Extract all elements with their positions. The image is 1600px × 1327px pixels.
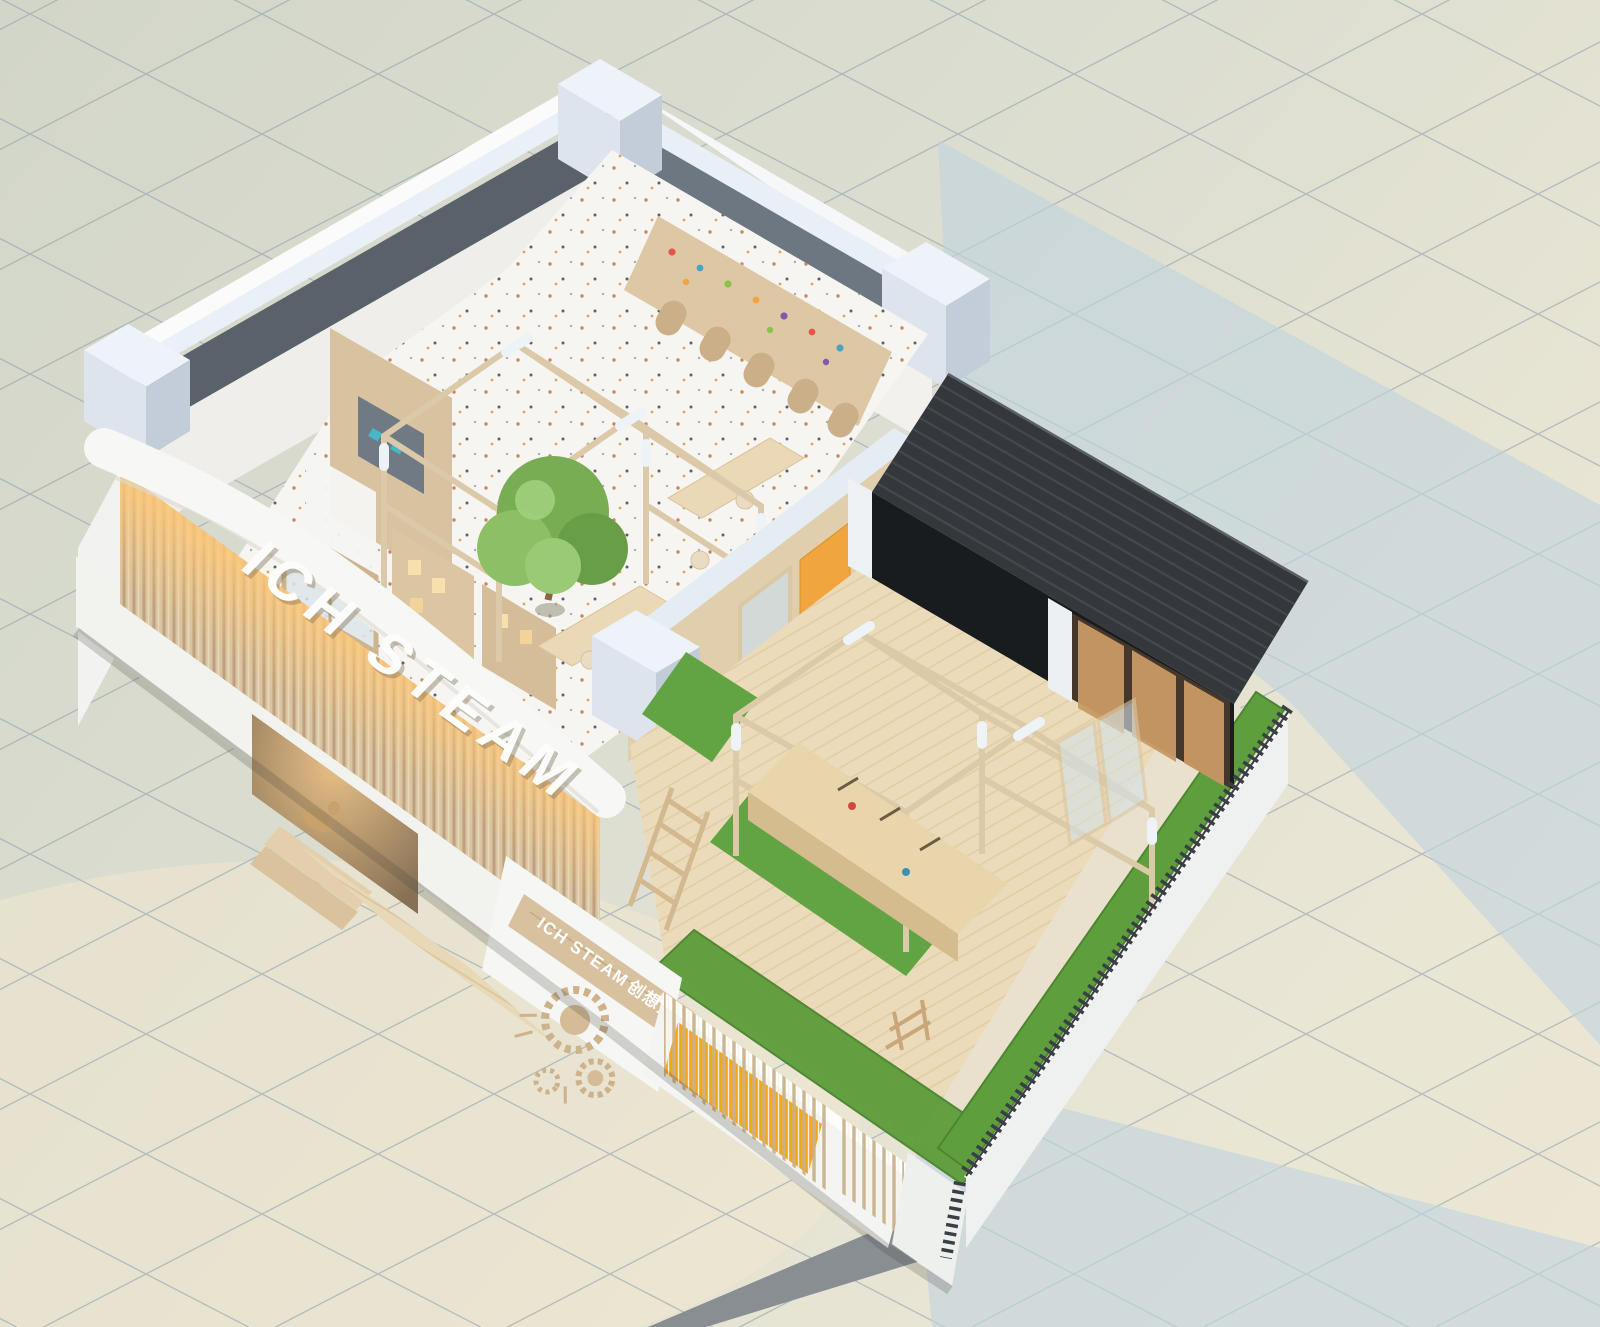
tool-dot bbox=[902, 868, 910, 876]
annex-pillar bbox=[1048, 598, 1072, 702]
render-canvas: ICH STEAM ICH STEAM ICH STEAM 创想力工坊 bbox=[0, 0, 1600, 1327]
tool-dot bbox=[848, 802, 856, 810]
isometric-scene: ICH STEAM ICH STEAM ICH STEAM 创想力工坊 bbox=[0, 0, 1600, 1327]
rocking-horse-head bbox=[328, 801, 340, 815]
annex-white-wall bbox=[848, 478, 874, 580]
